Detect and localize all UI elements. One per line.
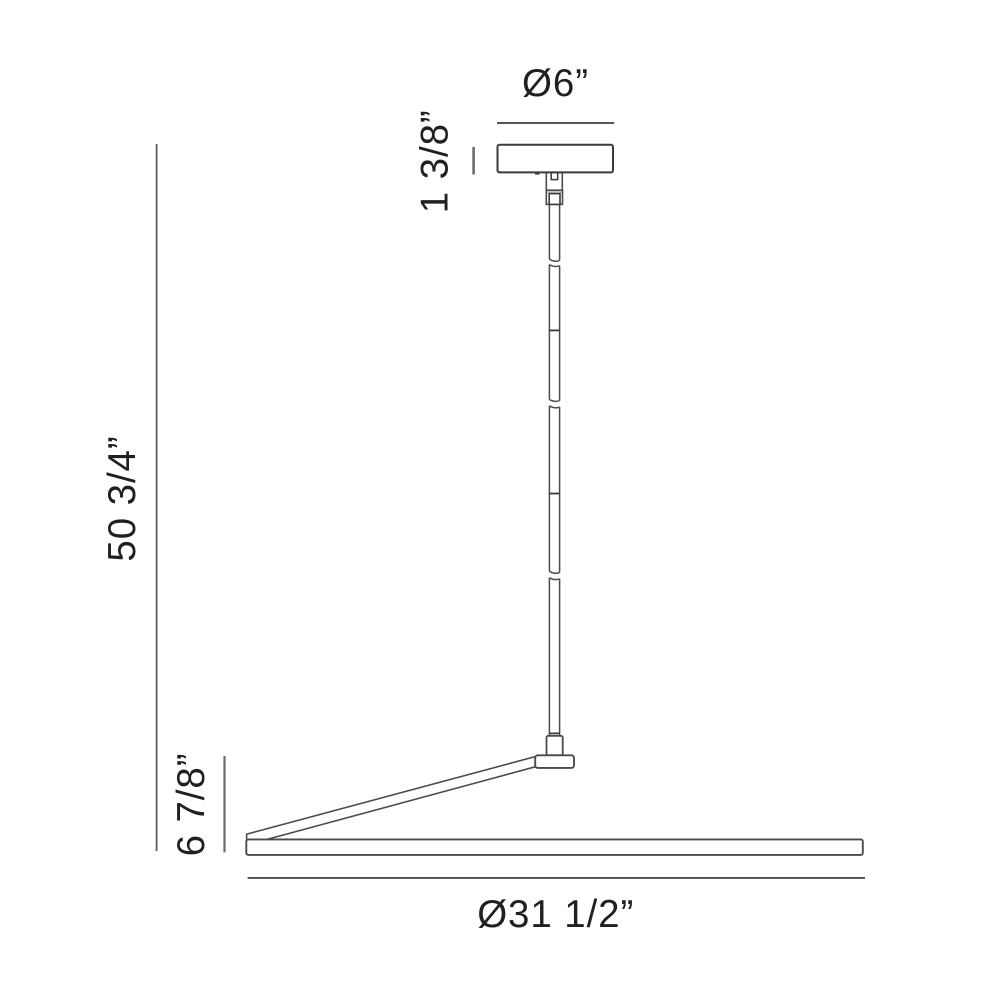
svg-text:Ø31 1/2”: Ø31 1/2” — [477, 893, 634, 936]
svg-text:50 3/4”: 50 3/4” — [101, 435, 144, 561]
svg-text:6 7/8”: 6 7/8” — [170, 753, 213, 857]
svg-text:1 3/8”: 1 3/8” — [414, 109, 457, 213]
svg-text:Ø6”: Ø6” — [522, 62, 589, 105]
